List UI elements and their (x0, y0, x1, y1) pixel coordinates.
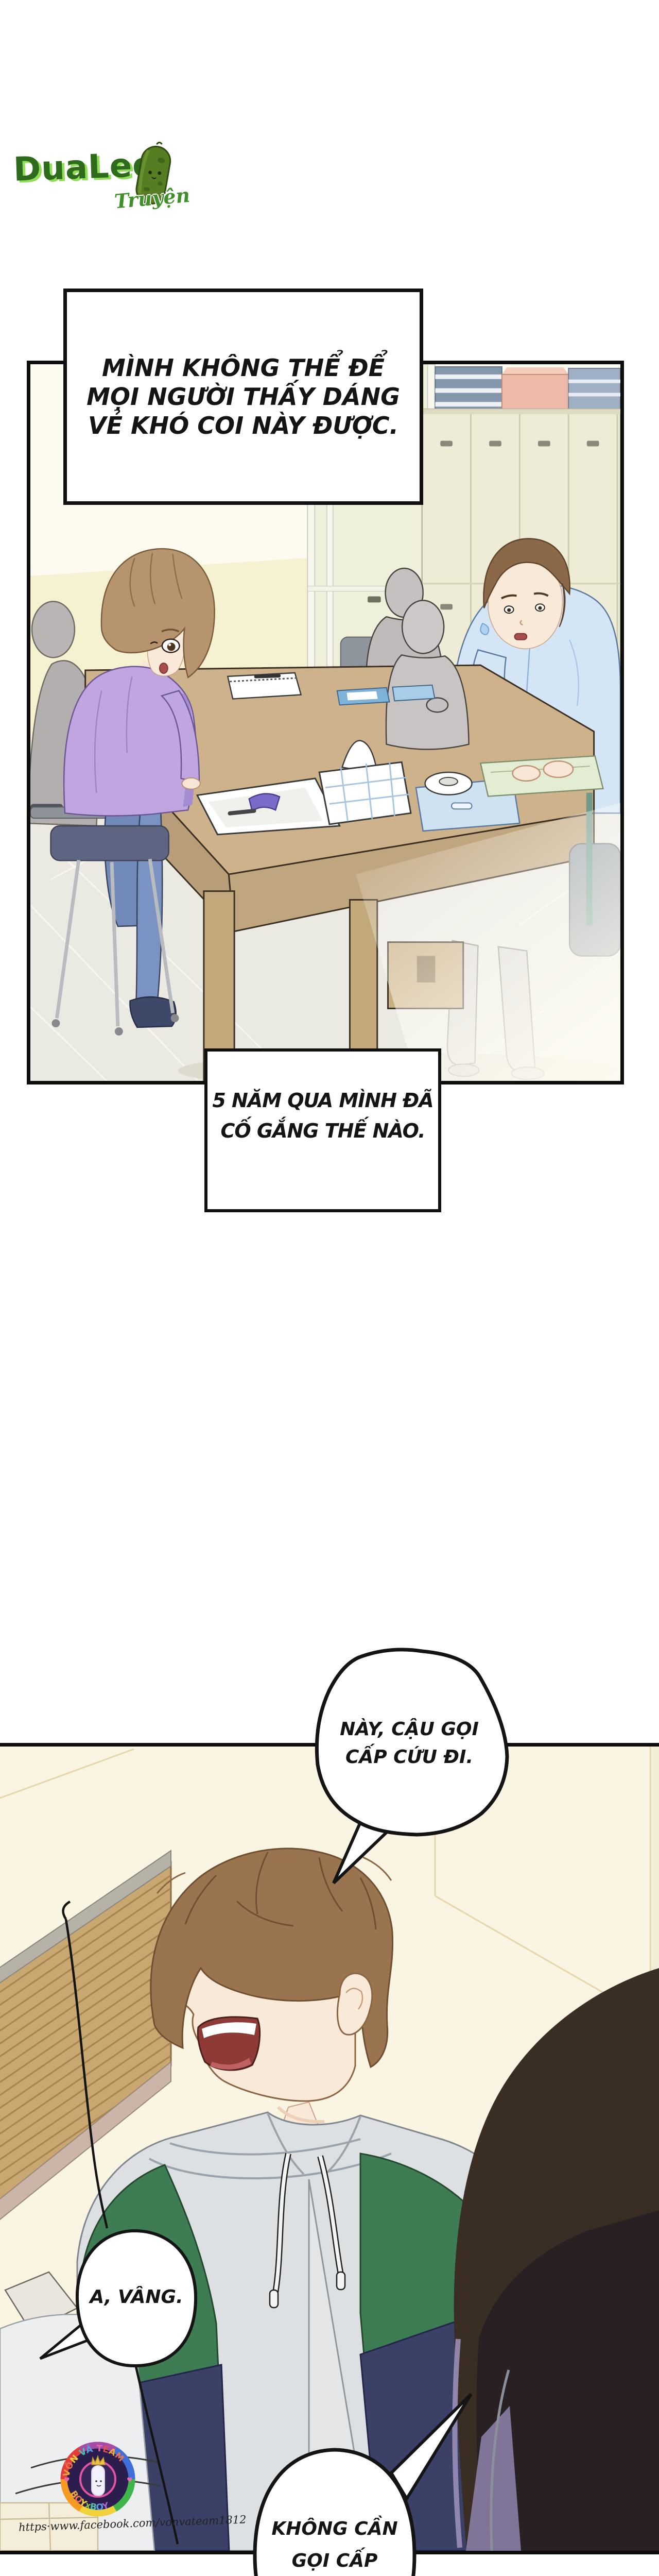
speech-bubble-3 (242, 2378, 479, 2576)
storage-shelf (435, 367, 620, 409)
documents-green (480, 756, 603, 796)
speech-bubble-1 (301, 1641, 517, 1893)
silhouette-fist (427, 698, 448, 712)
blue-boxes (568, 368, 620, 409)
man-hand (544, 761, 573, 777)
mouth (515, 634, 527, 640)
notepad (228, 673, 301, 699)
chair-seat (51, 826, 169, 860)
pink-box (502, 375, 568, 409)
narration-line: MÌNH KHÔNG THỂ ĐỂ (86, 353, 400, 382)
comic-page: DuaLeo Truyện MÌNH KHÔNG THỂ ĐỂ MỌI NGƯỜ… (0, 0, 659, 2576)
translator-logo: DuaLeo Truyện (13, 148, 188, 221)
narration-line: VẺ KHÓ COI NÀY ĐƯỢC. (86, 411, 400, 440)
bubble-tail (391, 2394, 471, 2499)
silhouette-head (402, 600, 444, 653)
heart-icon: ♥ (64, 2477, 70, 2484)
woman-hand (182, 778, 200, 789)
team-watermark-logo: VỒN VÃ TEAM BOYxBOY ♥ ♥ (56, 2436, 143, 2523)
narration-line: MỌI NGƯỜI THẤY DÁNG (86, 382, 400, 411)
door-handle (368, 596, 381, 602)
narration-line: CỐ GẮNG THẾ NÀO. (212, 1116, 433, 1146)
heart-icon: ♥ (127, 2477, 133, 2484)
speech-bubble-2 (21, 2215, 206, 2380)
narration-line: 5 NĂM QUA MÌNH ĐÃ (212, 1086, 433, 1116)
narration-box-2: 5 NĂM QUA MÌNH ĐÃ CỐ GẮNG THẾ NÀO. (204, 1048, 441, 1212)
finger-mascot-icon (92, 2456, 105, 2496)
shoe (130, 997, 176, 1027)
logo-subtitle: Truyện (113, 183, 190, 213)
silhouette-head (32, 601, 75, 657)
mouth (160, 663, 168, 673)
man-hand (513, 766, 540, 781)
narration-box-1: MÌNH KHÔNG THỂ ĐỂ MỌI NGƯỜI THẤY DÁNG VẺ… (63, 289, 423, 505)
